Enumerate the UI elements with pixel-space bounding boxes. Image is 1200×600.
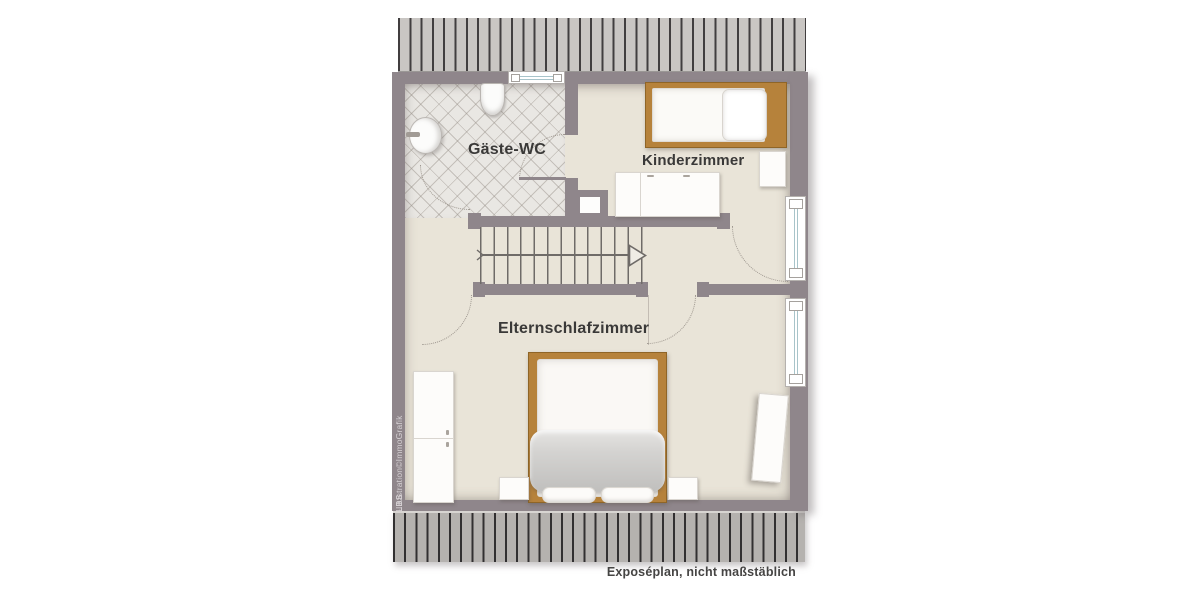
window-glass-line [794,308,798,377]
wall-end-cap [473,282,485,297]
window-end-cap [511,74,520,82]
bed-kinderzimmer [645,82,787,148]
footnote-disclaimer: Exposéplan, nicht maßstäblich [607,565,796,579]
faucet-icon [406,132,420,137]
window-elternschlafzimmer-icon [785,298,806,387]
window-top-icon [508,71,565,84]
drawer-handle [683,175,690,177]
window-end-cap [789,268,803,278]
wall-stair-bottom [475,284,648,295]
wall-right [790,72,808,511]
nightstand-left [499,477,529,500]
stair-direction-line [483,254,631,256]
chimney-shaft [580,197,600,213]
wall-end-cap [697,282,709,297]
room-label-gaeste-wc: Gäste-WC [452,141,562,159]
pillow [542,487,596,503]
stair-direction-arrow-icon [628,244,648,267]
credit-rest: -Illustration©ImmoGrafik [393,415,405,512]
window-glass-line [517,76,556,80]
room-label-kinderzimmer: Kinderzimmer [642,152,744,169]
window-end-cap [553,74,562,82]
wardrobe-knob [446,442,449,447]
dresser-kinderzimmer [615,172,720,217]
wall-wc-right-upper [565,84,578,135]
door-leaf-wc [519,177,566,180]
window-end-cap [789,199,803,209]
stair-start-tick-icon [476,249,485,261]
nightstand-kinderzimmer [759,151,786,187]
window-kinderzimmer-icon [785,196,806,281]
drawer-handle [647,175,654,177]
wardrobe-divider [414,438,453,439]
floor-plan-page: Gäste-WC Kinderzimmer Elternschlafzimmer… [0,0,1200,600]
wardrobe-knob [446,430,449,435]
double-bed-elternschlafzimmer [528,352,667,503]
wall-parents-right [697,284,790,295]
window-glass-line [794,206,798,271]
pillow [722,89,767,141]
window-end-cap [789,301,803,311]
roof-hatch-top [398,18,806,72]
dresser-divider [640,173,641,216]
window-end-cap [789,374,803,384]
nightstand-right [668,477,698,500]
wardrobe-elternschlafzimmer [413,371,454,503]
pillow [601,487,654,503]
roof-hatch-bottom [393,511,805,562]
blanket [530,430,665,492]
room-label-elternschlafzimmer: Elternschlafzimmer [498,320,649,338]
